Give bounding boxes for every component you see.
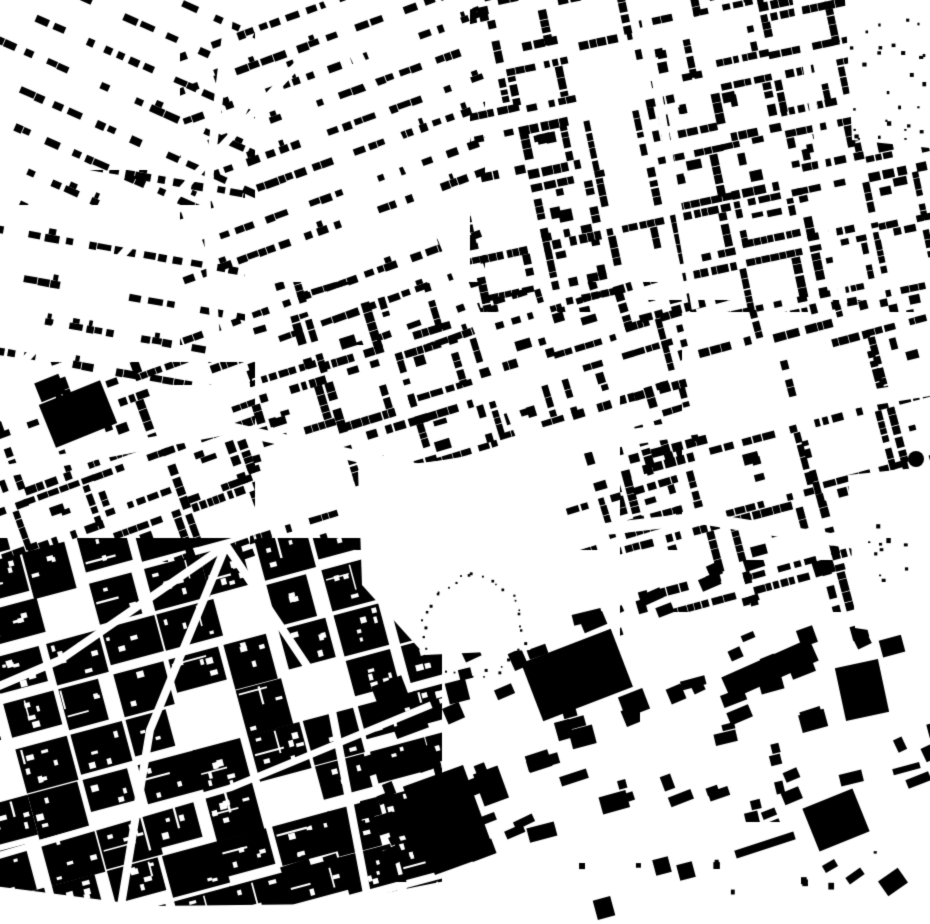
figure-ground-map xyxy=(0,0,930,924)
map-canvas xyxy=(0,0,930,924)
